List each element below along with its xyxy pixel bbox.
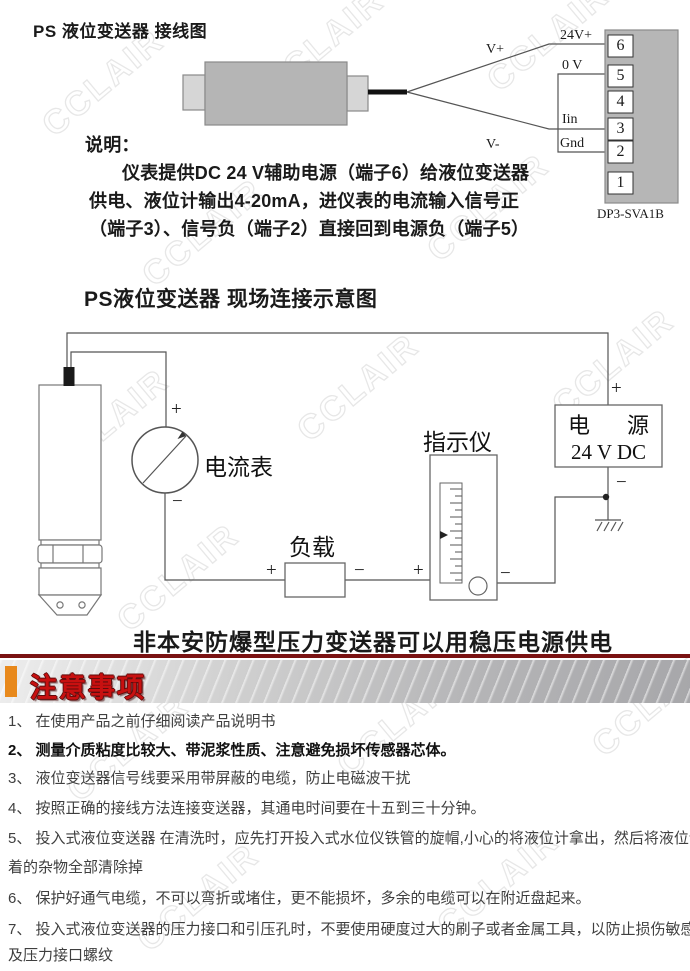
probe-drawing <box>38 385 102 615</box>
power-rating: 24 V DC <box>555 440 662 465</box>
ammeter-label: 电流表 <box>204 448 273 482</box>
wire-label-iin: Iin <box>562 112 578 128</box>
indicator-plus-sign: + <box>413 560 424 582</box>
field-diagram-title: PS液位变送器 现场连接示意图 <box>84 283 377 313</box>
terminal-number-2: 2 <box>608 143 633 161</box>
note-heading: 说明： <box>85 131 140 157</box>
notice-header: 注意事项 <box>30 666 146 705</box>
ammeter-plus-sign: + <box>171 399 182 421</box>
load-plus-sign: + <box>266 560 277 582</box>
junction-dot <box>603 494 609 500</box>
notice-item-1: 1、 在使用产品之前仔细阅读产品说明书 <box>8 710 276 731</box>
terminal-number-5: 5 <box>608 67 633 85</box>
field-diagram-footer: 非本安防爆型压力变送器可以用稳压电源供电 <box>133 623 613 657</box>
maroon-divider <box>0 654 690 658</box>
power-plus-sign: + <box>611 378 622 400</box>
ammeter-minus-sign: − <box>172 491 183 513</box>
note-line-1: 仪表提供DC 24 V辅助电源（端子6）给液位变送器 <box>122 159 529 185</box>
terminal-number-6: 6 <box>608 37 633 55</box>
notice-item-6: 6、 保护好通气电缆，不可以弯折或堵住，更不能损坏，多余的电缆可以在附近盘起来。 <box>8 887 591 908</box>
notice-item-5-cont: 着的杂物全部清除掉 <box>8 856 143 877</box>
ammeter-symbol <box>132 427 198 493</box>
notice-accent-bar <box>5 666 17 697</box>
wire-label-gnd: Gnd <box>560 136 584 152</box>
wire-label-v-minus: V- <box>486 137 500 153</box>
module-model-label: DP3-SVA1B <box>597 206 664 222</box>
notice-item-2: 2、 测量介质粘度比较大、带泥浆性质、注意避免损坏传感器芯体。 <box>8 739 456 760</box>
notice-item-7: 7、 投入式液位变送器的压力接口和引压孔时，不要使用硬度过大的刷子或者金属工具，… <box>8 918 690 939</box>
power-name-char-2: 源 <box>627 408 649 440</box>
note-line-3: （端子3）、信号负（端子2）直接回到电源负（端子5） <box>89 215 529 241</box>
wire-label-0v: 0 V <box>562 58 582 74</box>
wiring-diagram-title: PS 液位变送器 接线图 <box>33 17 207 42</box>
indicator-label: 指示仪 <box>423 423 492 457</box>
product-diagram-page: CCLAIR CCLAIR CCLAIR CCLAIR CCLAIR CCLAI… <box>0 0 690 971</box>
terminal-number-1: 1 <box>608 174 633 192</box>
terminal-number-4: 4 <box>608 93 633 111</box>
notice-item-4: 4、 按照正确的接线方法连接变送器，其通电时间要在十五到三十分钟。 <box>8 797 486 818</box>
power-name-char-1: 电 <box>568 408 590 440</box>
indicator-minus-sign: − <box>500 563 511 585</box>
ground-symbol <box>595 520 623 531</box>
wire-label-v-plus: V+ <box>486 42 504 58</box>
load-minus-sign: − <box>354 560 365 582</box>
power-minus-sign: − <box>616 472 627 494</box>
notice-item-7-cont: 及压力接口螺纹 <box>8 944 113 965</box>
transmitter-drawing <box>183 62 368 125</box>
notice-item-3: 3、 液位变送器信号线要采用带屏蔽的电缆，防止电磁波干扰 <box>8 767 411 788</box>
probe-cable-gland <box>64 367 75 386</box>
notice-item-5: 5、 投入式液位变送器 在清洗时，应先打开投入式水位仪铁管的旋帽,小心的将液位计… <box>8 827 690 848</box>
terminal-number-3: 3 <box>608 120 633 138</box>
note-line-2: 供电、液位计输出4-20mA，进仪表的电流输入信号正 <box>89 187 519 213</box>
power-supply-box-text: 电 源 24 V DC <box>555 405 662 467</box>
wire-label-24v: 24V+ <box>560 28 592 44</box>
load-box <box>285 563 345 597</box>
indicator-symbol <box>430 455 497 600</box>
load-label: 负载 <box>289 528 335 562</box>
